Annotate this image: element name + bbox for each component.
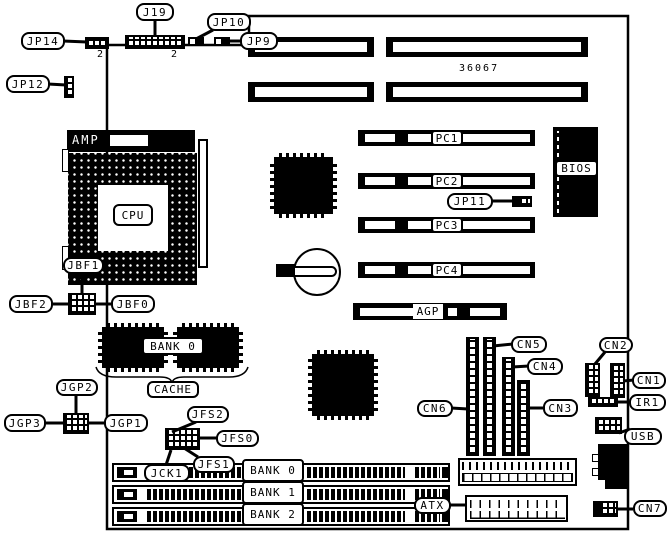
pc4-label: PC4 xyxy=(431,262,463,278)
bank1-label: BANK 1 xyxy=(242,481,304,504)
ir1-label: IR1 xyxy=(629,394,666,411)
jp14-pin2-marker: 2 xyxy=(97,49,103,60)
connector-tab-1 xyxy=(592,454,599,462)
jp10-jumper xyxy=(188,37,204,46)
jbf2-label: JBF2 xyxy=(9,295,53,313)
pc2-label: PC2 xyxy=(431,173,463,189)
isa-slot-1-segment-b xyxy=(386,37,588,57)
atx-power-connector xyxy=(465,495,568,522)
socket-lever xyxy=(198,139,208,268)
retention-bar-notch xyxy=(110,135,148,146)
cn7-header xyxy=(593,501,618,517)
j19-header xyxy=(125,35,185,49)
bank0-label: BANK 0 xyxy=(242,459,304,482)
connector-tab-2 xyxy=(592,468,599,476)
pc3-label: PC3 xyxy=(431,217,463,233)
jp14-header xyxy=(85,37,109,49)
cn2-label: CN2 xyxy=(599,337,633,353)
chipset-chip-north xyxy=(270,153,337,218)
cache-bank0-label: BANK 0 xyxy=(142,337,204,355)
j19-label: J19 xyxy=(136,3,174,21)
jgp-jumper-block xyxy=(63,413,89,434)
cn5-label: CN5 xyxy=(511,336,547,353)
jp9-label: JP9 xyxy=(240,32,278,50)
jfs-jumper-block xyxy=(165,428,200,450)
jp12-label: JP12 xyxy=(6,75,50,93)
front-panel-connector xyxy=(458,458,577,486)
jbf1-label: JBF1 xyxy=(63,257,104,274)
cache-label: CACHE xyxy=(147,381,199,398)
board-part-number: 36067 xyxy=(459,63,499,74)
cn7-label: CN7 xyxy=(633,500,667,517)
agp-label: AGP xyxy=(413,304,443,319)
keyboard-mouse-connector xyxy=(598,444,629,489)
cn3-label: CN3 xyxy=(543,399,578,417)
isa-slot-2-segment-b xyxy=(386,82,588,102)
jgp3-label: JGP3 xyxy=(4,414,46,432)
cpu-label: CPU xyxy=(113,204,153,226)
cn4-label: CN4 xyxy=(527,358,563,375)
jgp2-label: JGP2 xyxy=(56,379,98,396)
jgp1-label: JGP1 xyxy=(104,414,148,432)
ir1-header xyxy=(588,397,618,407)
jp11-label: JP11 xyxy=(447,193,493,210)
isa-slot-2-segment-a xyxy=(248,82,374,102)
cn2-header xyxy=(585,363,600,397)
socket-tab-upper xyxy=(62,149,69,172)
motherboard-diagram: 2 2 36067 AMP CPU BANK 0 CACHE xyxy=(0,0,672,534)
cn1-label: CN1 xyxy=(632,372,666,389)
cpu-retention-bar: AMP xyxy=(67,130,195,152)
battery-clip-arm xyxy=(293,266,337,277)
amp-brand-text: AMP xyxy=(72,133,100,147)
usb-header xyxy=(595,417,622,434)
j19-pin2-marker: 2 xyxy=(171,49,177,60)
jbf0-label: JBF0 xyxy=(111,295,155,313)
usb-label: USB xyxy=(624,428,662,445)
atx-label: ATX xyxy=(414,497,451,514)
jfs0-label: JFS0 xyxy=(216,430,259,447)
cn6-label: CN6 xyxy=(417,400,453,417)
jp11-jumper xyxy=(512,196,532,207)
jp9-jumper xyxy=(214,37,230,46)
cn4-header xyxy=(502,357,515,456)
jp12-jumper xyxy=(64,76,74,98)
cn3-header xyxy=(517,380,530,456)
bank2-label: BANK 2 xyxy=(242,503,304,526)
chipset-chip-south xyxy=(308,350,378,420)
jfs2-label: JFS2 xyxy=(187,406,229,423)
cn1-header xyxy=(610,363,625,398)
jp14-label: JP14 xyxy=(21,32,65,50)
jbf-jumper-block xyxy=(68,293,96,315)
pc1-label: PC1 xyxy=(431,130,463,146)
jfs1-label: JFS1 xyxy=(193,456,235,473)
jck1-label: JCK1 xyxy=(144,464,190,482)
cn5-header xyxy=(483,337,496,456)
cn6-header xyxy=(466,337,479,456)
bios-label: BIOS xyxy=(555,160,598,177)
jp10-label: JP10 xyxy=(207,13,251,31)
